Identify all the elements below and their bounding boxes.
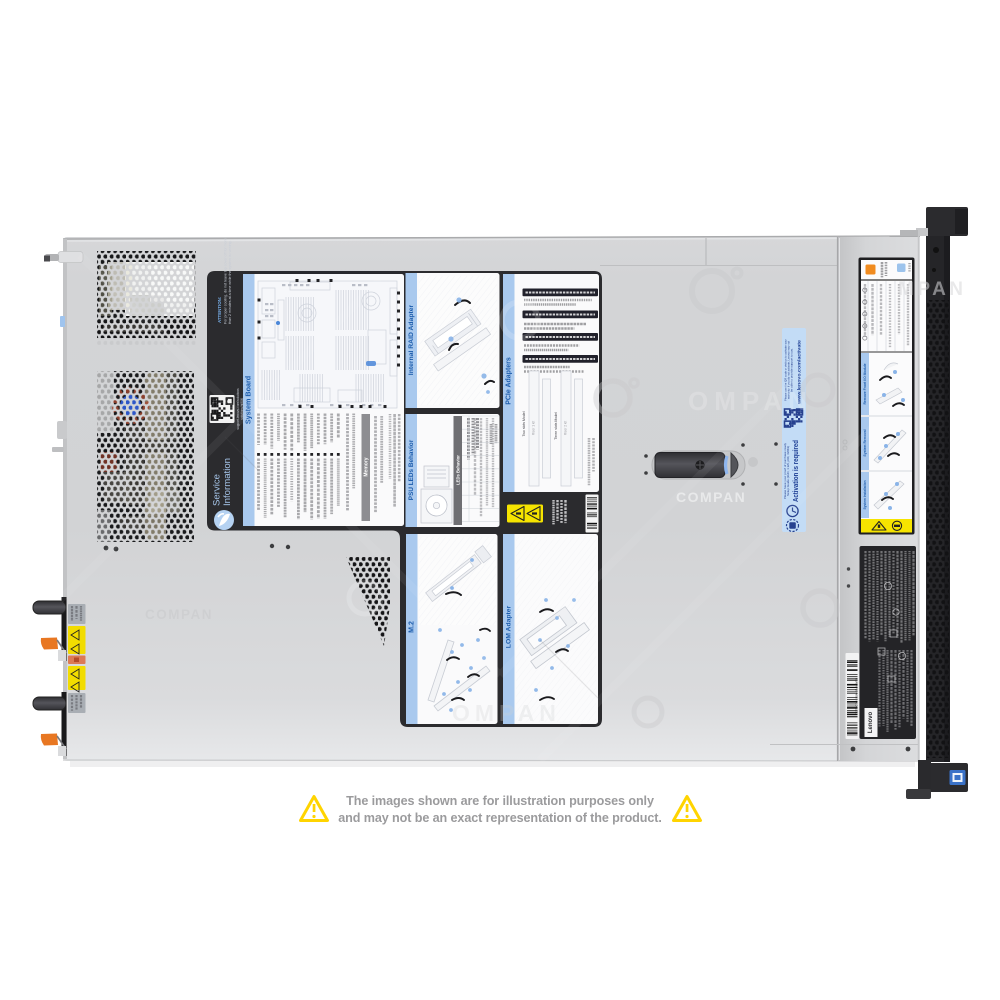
svg-text:Three slots Model: Three slots Model xyxy=(554,412,558,440)
svg-text:Two slots Model: Two slots Model xyxy=(522,411,526,436)
svg-text:Riser 2 kit: Riser 2 kit xyxy=(564,421,568,435)
svg-text:MPAN: MPAN xyxy=(898,279,967,300)
svg-text:M.2: M.2 xyxy=(409,621,416,633)
svg-text:than 2 minutes at a time while: than 2 minutes at a time while the syste… xyxy=(228,241,232,325)
svg-text:Internal RAID Adapter: Internal RAID Adapter xyxy=(408,304,415,375)
svg-text:OMPAN: OMPAN xyxy=(452,700,561,726)
svg-text:LOM Adapter: LOM Adapter xyxy=(506,605,513,648)
svg-text:Setup Guide (2HD, 1 left, p60,: Setup Guide (2HD, 1 left, p60, 3W49) xyxy=(786,446,790,496)
svg-text:System Installation: System Installation xyxy=(863,480,867,509)
svg-text:The images shown are for illus: The images shown are for illustration pu… xyxy=(346,794,654,808)
svg-text:Information: Information xyxy=(222,458,233,506)
svg-text:PSU LEDs Behavior: PSU LEDs Behavior xyxy=(408,439,415,500)
svg-text:Lenovo: Lenovo xyxy=(868,712,874,734)
svg-text:OMPAN: OMPAN xyxy=(688,386,813,416)
svg-text:Riser 1 kit: Riser 1 kit xyxy=(532,421,536,435)
svg-text:COMPAN: COMPAN xyxy=(145,607,213,622)
svg-text:Remove Front I/O Module: Remove Front I/O Module xyxy=(863,363,867,404)
svg-text:COMPAN: COMPAN xyxy=(676,489,746,505)
svg-text:ATTENTION:: ATTENTION: xyxy=(217,296,222,323)
svg-text:Activation is required: Activation is required xyxy=(791,440,800,502)
svg-text:LEDs Behavior: LEDs Behavior xyxy=(456,455,461,485)
svg-text:7Z73CTO1WW-BAAVW98: 7Z73CTO1WW-BAAVW98 xyxy=(855,678,859,714)
svg-text:PCIe Adapters: PCIe Adapters xyxy=(506,357,513,405)
svg-text:and may not be an exact repres: and may not be an exact representation o… xyxy=(338,811,662,825)
svg-text:For proper cooling, do not lea: For proper cooling, do not leave top cov… xyxy=(224,238,228,324)
svg-text:Memory: Memory xyxy=(364,457,370,476)
svg-text:Service: Service xyxy=(212,474,223,506)
